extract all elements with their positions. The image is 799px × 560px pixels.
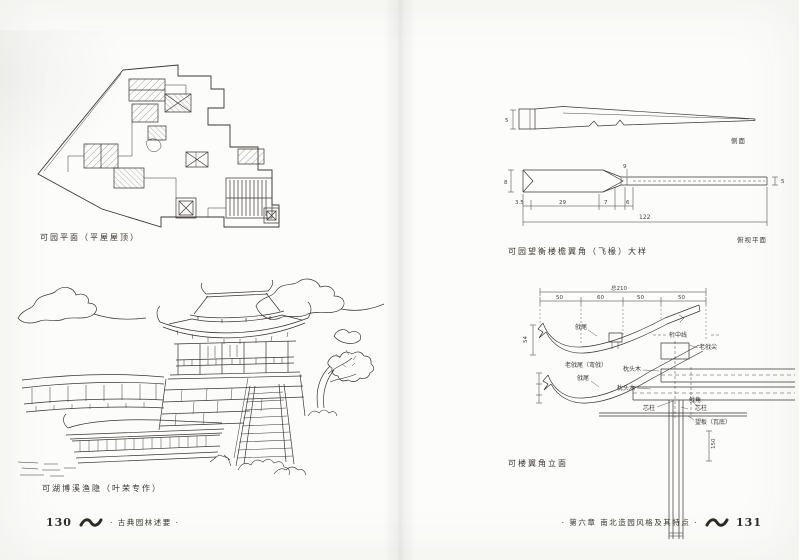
floor-plan-drawing [28,62,293,234]
footer-left: 130 · 古典园林述要 · [46,516,180,529]
left-page: 可园平面（平屋屋顶） [0,0,399,560]
plan-view-label: 俯视平面 [737,235,767,244]
chapter-title: · 第六章 南北造园风格及其特点 · [562,517,698,528]
label-board: 望板（瓦底） [695,418,731,426]
dim-neck: 9 [623,164,627,170]
footer-right: · 第六章 南北造园风格及其特点 · 131 [562,516,762,529]
elevation-caption: 可楼翼角立面 [508,458,568,469]
dim-plan-left: 8 [504,180,508,186]
label-corner-visible: 戗角 [689,396,701,404]
plan-caption: 可园平面（平屋屋顶） [40,232,140,243]
label-pillow-a: 枕头木 [623,365,641,373]
book-title: · 古典园林述要 · [110,517,180,528]
page-number: 130 [46,516,72,529]
dim-seg-c: 50 [637,295,644,301]
dim-seg-a: 50 [556,295,563,301]
dim-b: 29 [559,200,566,206]
label-core-b: 芯柱 [695,404,707,412]
dim-total: 122 [639,214,651,221]
dim-elev-left: 54 [523,336,529,343]
wave-ornament-icon [706,517,728,528]
right-page: 5 侧面 8 3.5 29 7 6 [400,0,799,560]
dim-side-height: 5 [505,118,509,124]
page-number: 131 [736,516,762,529]
label-pillow-b: 枕头木 [617,384,635,392]
dim-plan-right: 5 [781,179,785,185]
elevation-sub-caption: 老戗尾（弯戗） [565,361,607,369]
label-core-a: 芯柱 [643,404,655,412]
dim-d: 6 [626,200,630,206]
label-centerline: 桁中线 [669,331,687,339]
rafter-plan-view-drawing: 8 3.5 29 7 6 9 122 5 俯视平面 [503,156,793,248]
book-spread: 可园平面（平屋屋顶） [0,0,799,560]
corner-elevation-drawing: 总210 50 60 50 50 54 戗尾 老戗尾（弯戗） 戗尾 桁中线 老戗… [503,283,795,545]
wave-ornament-icon [80,517,102,528]
label-tail-top: 戗尾 [575,323,587,331]
dim-seg-b: 60 [597,295,604,301]
dim-c: 7 [604,200,608,206]
dim-elev-total: 总210 [611,284,627,292]
rafter-side-view-drawing: 5 侧面 [503,96,773,151]
scene-caption: 可湖博溪渔隐（叶荣专作） [42,483,162,494]
dim-seg-d: 50 [678,295,685,301]
label-tail-bottom: 戗尾 [577,374,589,382]
dim-a: 3.5 [515,200,524,206]
side-view-label: 侧面 [731,136,746,145]
label-tip: 老戗尖 [699,343,717,351]
detail-caption: 可园望衡楼檐翼角（飞椽）大样 [508,246,648,257]
garden-scene-drawing [12,278,392,482]
dim-column: 150 [711,438,717,449]
